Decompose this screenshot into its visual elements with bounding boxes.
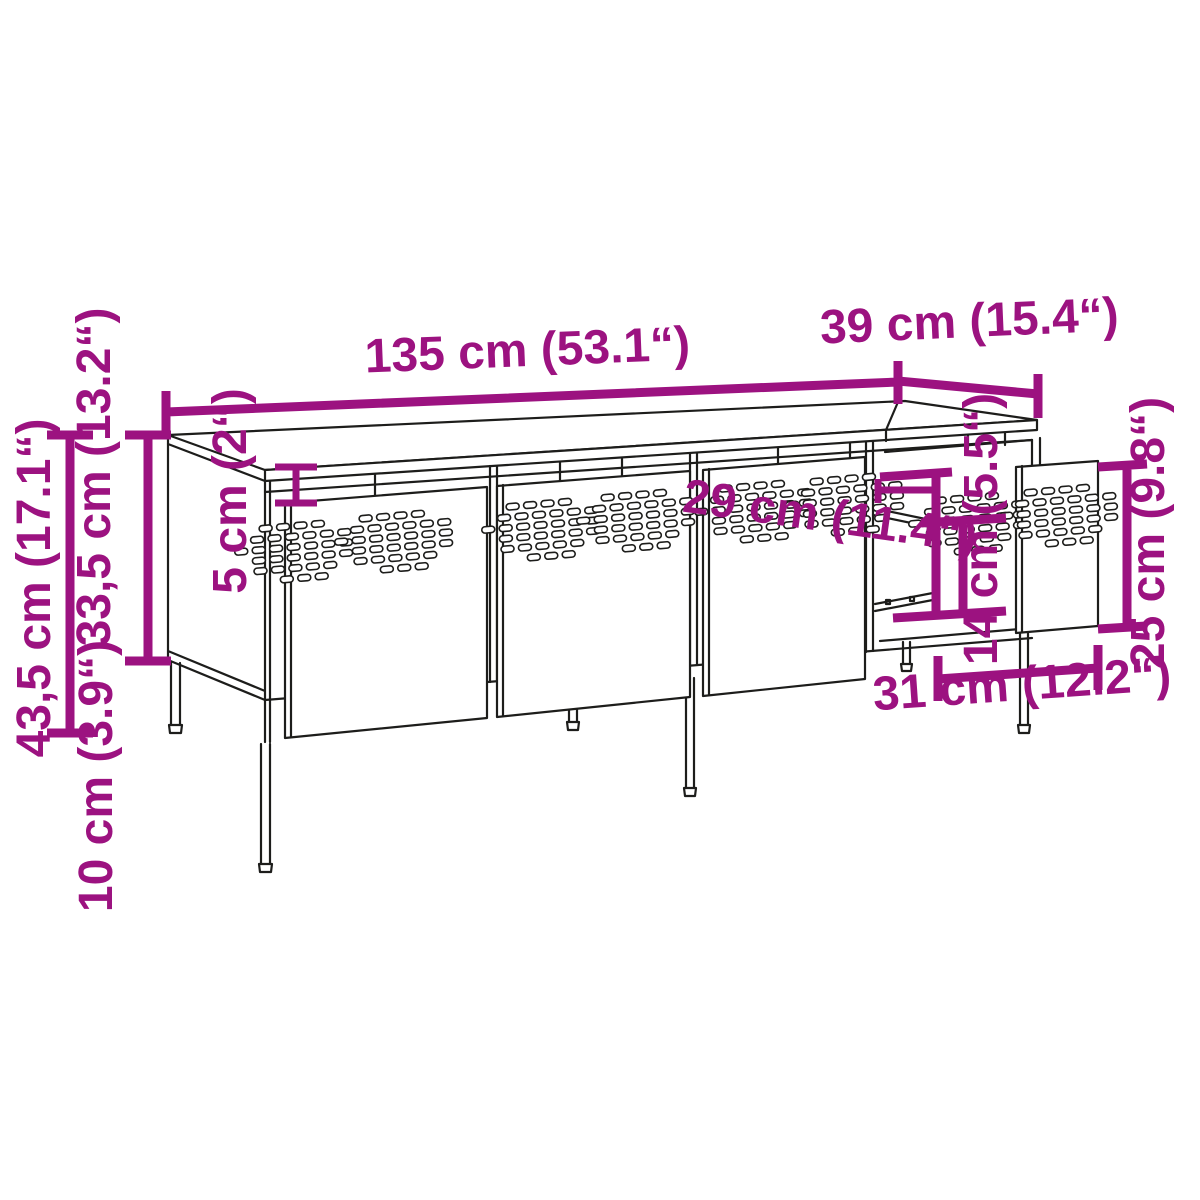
product-dimension-diagram: 135 cm (53.1“) 39 cm (15.4“) 43,5 cm (17… — [0, 0, 1200, 1200]
label-total-height: 43,5 cm (17.1“) — [8, 419, 61, 758]
glide-screw-2 — [910, 597, 914, 601]
diagram-canvas: 135 cm (53.1“) 39 cm (15.4“) 43,5 cm (17… — [0, 0, 1200, 1200]
label-door-width: 31 cm (12.2“) — [871, 648, 1173, 722]
label-width: 135 cm (53.1“) — [364, 318, 691, 384]
dim-body-height-line — [125, 435, 171, 661]
drawer-glides — [875, 592, 938, 611]
label-body-height: 33,5 cm (13.2“) — [68, 308, 121, 647]
label-door-height: 25 cm (9.8“) — [1122, 397, 1175, 669]
label-top-gap: 5 cm (2“) — [204, 388, 257, 593]
label-drawer-height: 14 cm (5.5“) — [955, 393, 1008, 665]
label-leg-height: 10 cm (3.9“) — [70, 640, 123, 912]
label-depth: 39 cm (15.4“) — [819, 289, 1120, 355]
